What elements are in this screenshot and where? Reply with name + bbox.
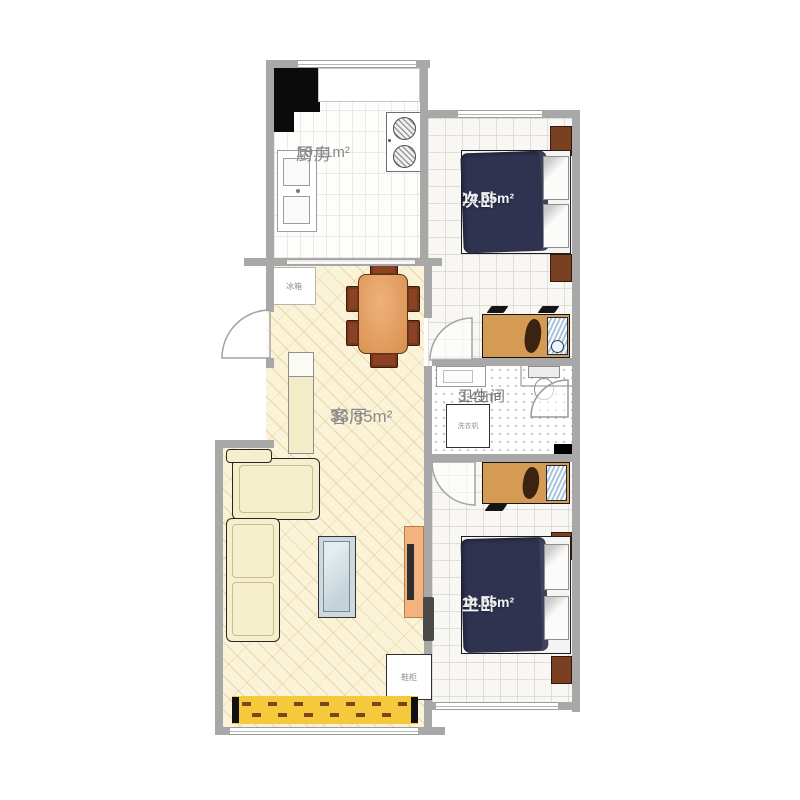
floor-plan-canvas: 洗衣机 冰箱 鞋柜 (0, 0, 800, 800)
door-arcs (0, 0, 800, 800)
hall-door-arc (430, 318, 472, 360)
room-area: 33.85m² (330, 406, 392, 427)
room-area: 14.05m² (462, 190, 514, 208)
room-area: 14.05m² (462, 594, 514, 612)
entry-door-arc (222, 310, 270, 358)
room-area: 3.49m² (458, 388, 502, 406)
room-area: 10.11m² (296, 144, 350, 163)
master-door-arc (432, 462, 475, 505)
